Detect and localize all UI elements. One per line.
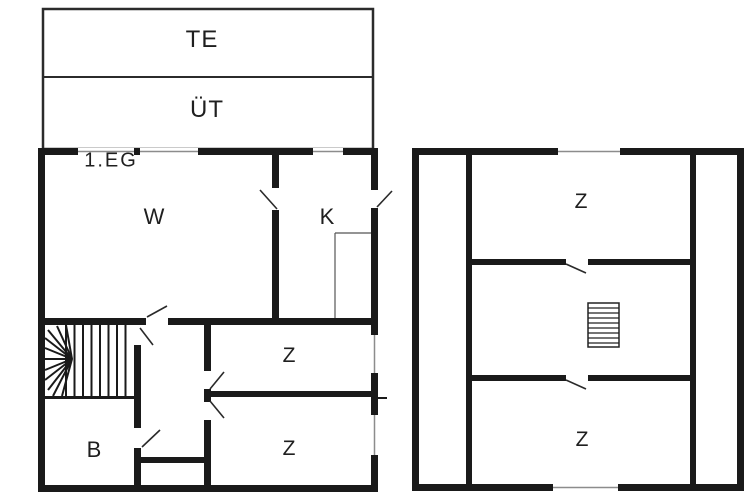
door-swing xyxy=(140,328,153,345)
annex-label-uet: ÜT xyxy=(190,96,224,124)
wall-lower-a xyxy=(472,375,566,381)
wall-tick-outside xyxy=(378,397,387,399)
wall-left xyxy=(38,148,45,492)
wall-small-room xyxy=(134,457,211,463)
wall-knee-right xyxy=(690,155,696,484)
wall-corridor-left-b xyxy=(134,448,141,485)
window xyxy=(553,484,618,491)
window xyxy=(140,148,198,155)
winder-staircase xyxy=(45,323,134,398)
wall-corridor-left-a xyxy=(134,345,141,428)
door-swings xyxy=(566,264,586,389)
door-swing xyxy=(566,264,586,273)
floor-plan-drawing xyxy=(0,0,750,500)
wall-upper-a xyxy=(472,259,566,265)
room-label-z-top-right: Z xyxy=(575,190,588,214)
wall-upper-b xyxy=(588,259,690,265)
room-label-z-bottom-right: Z xyxy=(576,428,589,452)
wall-lower-b xyxy=(588,375,690,381)
door-opening xyxy=(371,190,378,208)
wall-bottom xyxy=(38,485,378,492)
windows xyxy=(78,148,378,455)
wall-wk-lower xyxy=(272,210,279,325)
kitchen-counter xyxy=(335,233,371,318)
window xyxy=(371,415,378,455)
wall-left xyxy=(412,148,419,491)
straight-staircase xyxy=(588,303,619,347)
door-swing xyxy=(142,430,160,447)
window xyxy=(313,148,343,155)
door-swing xyxy=(210,401,224,418)
door-swing xyxy=(210,372,224,389)
room-label-w: W xyxy=(144,204,165,230)
door-swing xyxy=(147,306,167,317)
wall-z-divider xyxy=(204,391,378,397)
wall-knee-left xyxy=(466,155,472,484)
exterior-door xyxy=(371,190,392,208)
door-swing xyxy=(566,380,586,389)
floor-label: 1.EG xyxy=(84,150,138,173)
wall-right xyxy=(737,148,744,491)
floor-plan-canvas: TE ÜT 1.EG W K Z Z B Z Z xyxy=(0,0,750,500)
annex-label-te: TE xyxy=(186,26,219,54)
door-swing xyxy=(377,191,392,207)
room-label-k: K xyxy=(320,204,335,230)
wall-corridor-right-c xyxy=(204,420,211,485)
room-label-b: B xyxy=(87,437,102,463)
window xyxy=(371,335,378,373)
interior-walls xyxy=(45,155,387,485)
left-plan xyxy=(38,9,392,492)
room-label-z-upper: Z xyxy=(283,344,296,368)
stair-treads xyxy=(66,324,126,396)
wall-corridor-right-a xyxy=(204,325,211,371)
stair-outline xyxy=(588,303,619,347)
door-swing xyxy=(260,190,277,209)
stair-winder-fan xyxy=(45,325,72,396)
window xyxy=(558,148,620,155)
wall-wk-upper xyxy=(272,155,279,188)
room-label-z-lower: Z xyxy=(283,437,296,461)
wall-mid-right xyxy=(168,318,371,325)
